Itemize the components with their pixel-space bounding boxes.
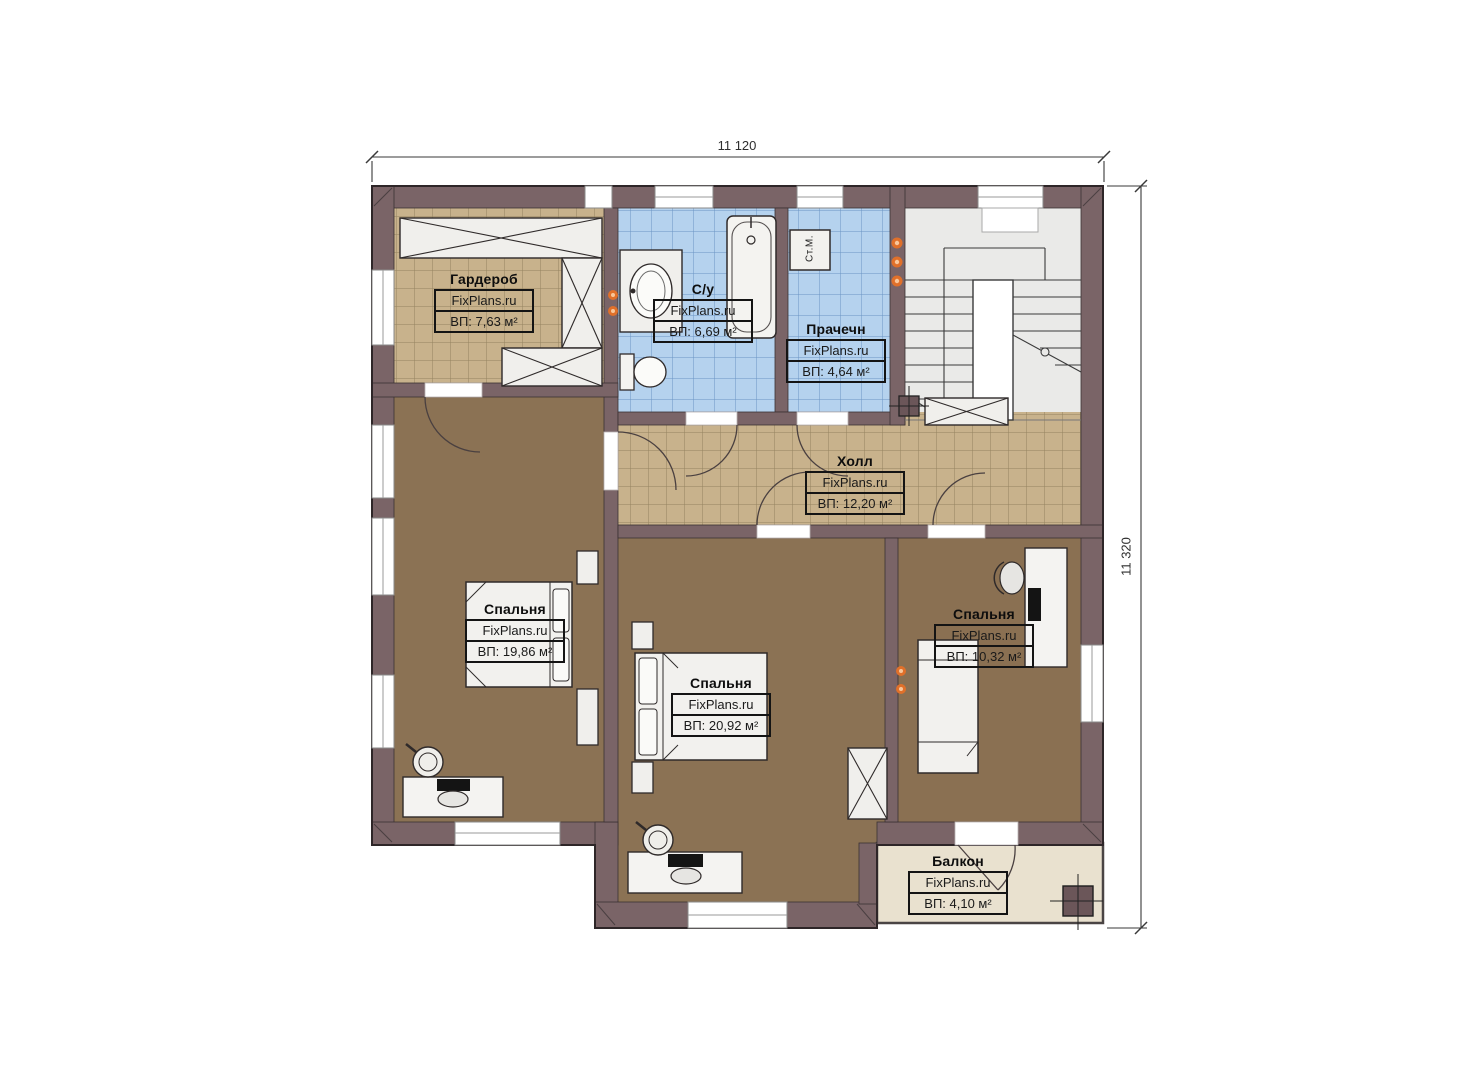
watermark: FixPlans.ru: [655, 301, 751, 322]
sink-tap: [631, 289, 636, 294]
cabinet: [577, 689, 598, 745]
room-name: Балкон: [898, 853, 1018, 869]
watermark: FixPlans.ru: [467, 621, 563, 642]
room-area: ВП: 10,32 м²: [936, 647, 1032, 666]
room-info-box: FixPlans.ru ВП: 20,92 м²: [671, 693, 771, 737]
pot: [643, 825, 673, 855]
room-name: С/у: [643, 281, 763, 297]
watermark: FixPlans.ru: [910, 873, 1006, 894]
washing-machine-label: Ст.М.: [805, 224, 816, 274]
watermark: FixPlans.ru: [436, 291, 532, 312]
nightstand: [632, 622, 653, 649]
room-info-box: FixPlans.ru ВП: 6,69 м²: [653, 299, 753, 343]
room-label-garderob: Гардероб FixPlans.ru ВП: 7,63 м²: [424, 271, 544, 333]
monitor: [668, 854, 703, 867]
room-area: ВП: 20,92 м²: [673, 716, 769, 735]
watermark: FixPlans.ru: [673, 695, 769, 716]
desk-chair: [438, 791, 468, 807]
room-area: ВП: 6,69 м²: [655, 322, 751, 341]
room-info-box: FixPlans.ru ВП: 10,32 м²: [934, 624, 1034, 668]
room-info-box: FixPlans.ru ВП: 7,63 м²: [434, 289, 534, 333]
room-label-balcony: Балкон FixPlans.ru ВП: 4,10 м²: [898, 853, 1018, 915]
room-name: Спальня: [924, 606, 1044, 622]
room-label-bathroom: С/у FixPlans.ru ВП: 6,69 м²: [643, 281, 763, 343]
room-name: Спальня: [455, 601, 575, 617]
room-area: ВП: 4,64 м²: [788, 362, 884, 381]
understair-closet: [925, 398, 1008, 425]
floor-plan-drawing: [0, 0, 1473, 1080]
room-area: ВП: 19,86 м²: [467, 642, 563, 661]
room-name: Прачечн: [776, 321, 896, 337]
room-name: Холл: [795, 453, 915, 469]
toilet-tank: [620, 354, 634, 390]
room-label-bedroom-middle: Спальня FixPlans.ru ВП: 20,92 м²: [661, 675, 781, 737]
room-info-box: FixPlans.ru ВП: 4,10 м²: [908, 871, 1008, 915]
room-name: Гардероб: [424, 271, 544, 287]
pot: [413, 747, 443, 777]
room-label-hall: Холл FixPlans.ru ВП: 12,20 м²: [795, 453, 915, 515]
dimension-right-label: 11 320: [1119, 507, 1134, 607]
desk-chair: [1000, 562, 1024, 594]
room-name: Спальня: [661, 675, 781, 691]
watermark: FixPlans.ru: [788, 341, 884, 362]
room-area: ВП: 4,10 м²: [910, 894, 1006, 913]
room-info-box: FixPlans.ru ВП: 12,20 м²: [805, 471, 905, 515]
room-label-bedroom-right: Спальня FixPlans.ru ВП: 10,32 м²: [924, 606, 1044, 668]
monitor: [437, 779, 470, 791]
room-area: ВП: 7,63 м²: [436, 312, 532, 331]
pillow: [639, 709, 657, 755]
watermark: FixPlans.ru: [807, 473, 903, 494]
pillow: [639, 658, 657, 704]
floor-plan-page: 11 120 11 320 Ст.М. Гардероб FixPlans.ru…: [0, 0, 1473, 1080]
watermark: FixPlans.ru: [936, 626, 1032, 647]
room-info-box: FixPlans.ru ВП: 19,86 м²: [465, 619, 565, 663]
nightstand: [577, 551, 598, 584]
toilet-bowl: [634, 357, 666, 387]
nightstand: [632, 762, 653, 793]
dimension-top-label: 11 120: [687, 138, 787, 153]
room-info-box: FixPlans.ru ВП: 4,64 м²: [786, 339, 886, 383]
room-area: ВП: 12,20 м²: [807, 494, 903, 513]
desk-chair: [671, 868, 701, 884]
room-label-laundry: Прачечн FixPlans.ru ВП: 4,64 м²: [776, 321, 896, 383]
room-label-bedroom-left: Спальня FixPlans.ru ВП: 19,86 м²: [455, 601, 575, 663]
